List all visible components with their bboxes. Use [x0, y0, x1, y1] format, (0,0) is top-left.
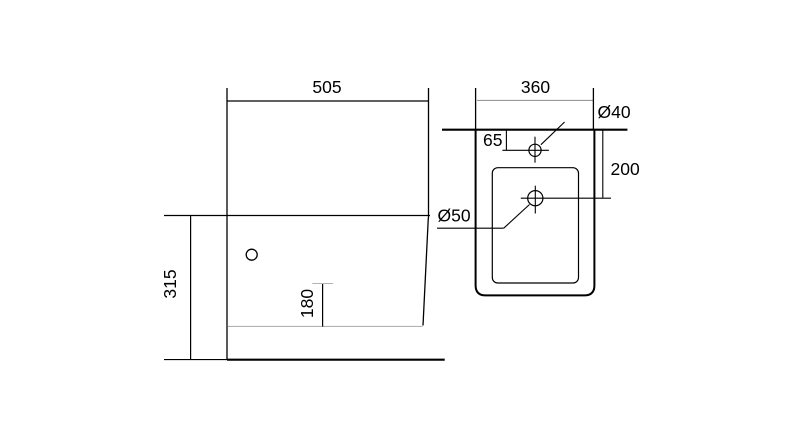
svg-text:Ø40: Ø40 — [598, 102, 631, 122]
svg-text:360: 360 — [521, 77, 550, 97]
svg-text:505: 505 — [312, 77, 341, 97]
svg-text:65: 65 — [483, 130, 502, 150]
svg-text:180: 180 — [297, 289, 317, 318]
svg-text:200: 200 — [611, 159, 640, 179]
svg-text:315: 315 — [160, 269, 180, 298]
svg-text:Ø50: Ø50 — [438, 206, 471, 226]
